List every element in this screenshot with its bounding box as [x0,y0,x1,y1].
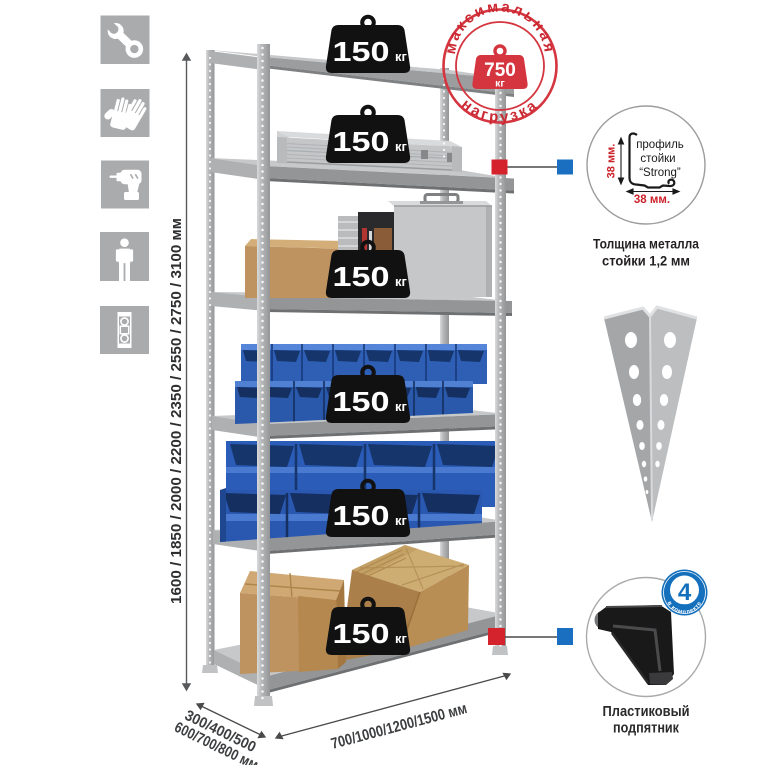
svg-text:кг: кг [495,78,505,90]
svg-text:кг: кг [395,399,408,414]
svg-text:Толщина металла: Толщина металла [593,236,699,252]
svg-text:стойки: стойки [640,153,675,165]
svg-text:кг: кг [395,631,408,646]
svg-text:кг: кг [395,139,408,154]
svg-text:Пластиковый: Пластиковый [603,703,690,720]
svg-text:профиль: профиль [636,139,684,151]
svg-text:кг: кг [395,274,408,289]
svg-text:штуки: штуки [678,603,692,608]
svg-text:150: 150 [333,618,390,649]
svg-text:“Strong”: “Strong” [639,167,681,179]
svg-text:150: 150 [333,126,390,157]
svg-text:38 мм.: 38 мм. [606,144,618,179]
svg-text:кг: кг [395,513,408,528]
svg-text:150: 150 [333,500,390,531]
svg-text:подпятник: подпятник [613,720,679,737]
svg-text:38 мм.: 38 мм. [634,194,670,206]
svg-text:1600 / 1850 / 2000 / 2200 / 23: 1600 / 1850 / 2000 / 2200 / 2350 / 2550 … [168,218,185,604]
svg-text:150: 150 [333,36,390,67]
svg-text:150: 150 [333,386,390,417]
svg-text:стойки 1,2 мм: стойки 1,2 мм [602,253,690,269]
svg-text:кг: кг [395,49,408,64]
svg-text:150: 150 [333,261,390,292]
